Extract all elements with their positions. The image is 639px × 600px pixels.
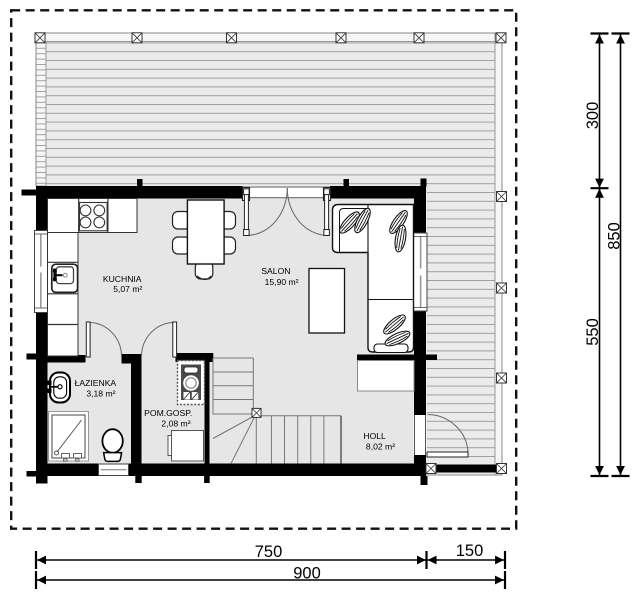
svg-text:15,90 m²: 15,90 m²	[265, 277, 299, 287]
svg-text:900: 900	[293, 565, 321, 583]
svg-text:SALON: SALON	[261, 266, 290, 276]
svg-text:550: 550	[584, 318, 602, 346]
svg-text:5,07 m²: 5,07 m²	[113, 284, 142, 294]
svg-text:KUCHNIA: KUCHNIA	[103, 274, 142, 284]
svg-text:150: 150	[456, 542, 484, 560]
svg-text:8,02 m²: 8,02 m²	[366, 442, 395, 452]
svg-text:ŁAZIENKA: ŁAZIENKA	[75, 378, 117, 388]
svg-text:850: 850	[606, 222, 624, 250]
svg-text:3,18 m²: 3,18 m²	[86, 389, 115, 399]
svg-text:POM.GOSP.: POM.GOSP.	[144, 408, 192, 418]
svg-text:750: 750	[255, 543, 283, 561]
svg-text:HOLL: HOLL	[363, 431, 386, 441]
svg-text:300: 300	[584, 102, 602, 130]
svg-text:2,08 m²: 2,08 m²	[161, 418, 190, 428]
